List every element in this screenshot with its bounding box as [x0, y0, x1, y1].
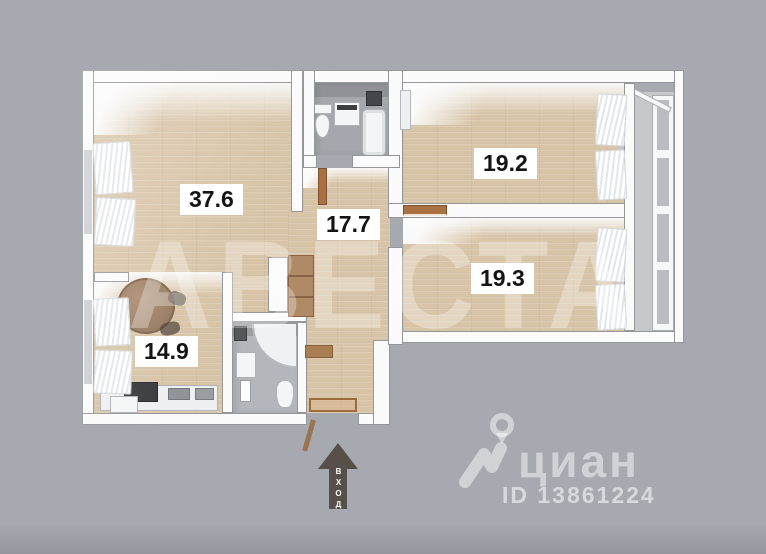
hallway-area-label: 17.7	[317, 209, 380, 240]
kitchen-sink	[195, 388, 214, 400]
wc-door-leaf	[318, 168, 327, 205]
kitchen-sink	[168, 388, 190, 400]
bedroom-2-area-label: 19.3	[471, 263, 534, 294]
entrance-mat	[309, 398, 357, 412]
kitchen-curtain	[93, 297, 131, 347]
wardrobe	[288, 255, 314, 317]
bedroom-1-curtain	[595, 93, 628, 146]
wall	[674, 70, 684, 343]
living-room-curtain	[94, 197, 136, 247]
bedroom-1-door-leaf	[400, 90, 411, 130]
bathroom-door-leaf	[240, 380, 251, 402]
entry-shelf	[305, 345, 333, 358]
wall	[94, 272, 129, 282]
washing-machine-panel	[336, 104, 358, 111]
window-glass	[84, 150, 92, 234]
wall	[222, 272, 233, 413]
wall	[303, 155, 317, 168]
wall	[373, 340, 390, 425]
floor-plan-image: ВХОД 37.6 17.7 19.2 19.3 14.9 АВЕСТА циа…	[0, 0, 766, 554]
kitchen-area-label: 14.9	[135, 336, 198, 367]
entrance-arrow: ВХОД	[318, 443, 358, 511]
bathroom-cabinet	[234, 326, 247, 341]
wall	[268, 257, 288, 312]
entrance-label: ВХОД	[334, 467, 342, 511]
bedroom-2-curtain	[595, 227, 628, 282]
entrance-arrow-shaft: ВХОД	[329, 468, 347, 509]
cian-logo-text: циан	[518, 434, 640, 488]
wall	[297, 322, 307, 413]
wall	[390, 331, 684, 343]
living-room-area-label: 37.6	[180, 184, 243, 215]
cian-person-pin-icon	[458, 410, 524, 488]
wall	[352, 155, 400, 168]
listing-id: ID 13861224	[502, 482, 656, 509]
wall	[82, 413, 307, 425]
wall	[303, 70, 315, 168]
hallway-floor	[303, 168, 390, 345]
window-glass	[84, 300, 92, 384]
bathroom-toilet	[276, 380, 294, 408]
living-hall-passage-floor	[288, 210, 306, 258]
bathroom-sink	[236, 352, 256, 378]
wall	[82, 70, 684, 83]
living-room-curtain	[92, 141, 134, 196]
toilet-tank	[313, 104, 332, 114]
balcony-window-pane	[657, 214, 669, 262]
arrow-up-icon	[318, 443, 358, 469]
kitchen-curtain	[93, 349, 133, 394]
bedroom-1-curtain	[595, 149, 628, 201]
bedroom-2-curtain	[595, 283, 627, 331]
balcony-window-pane	[657, 158, 669, 206]
wall	[291, 70, 303, 212]
wall-sink	[366, 91, 382, 106]
kitchen-stool	[110, 396, 138, 413]
wall	[388, 247, 403, 345]
bathtub	[362, 109, 386, 156]
cian-logo	[458, 410, 524, 488]
bedroom-2-door-leaf	[403, 205, 447, 216]
bottom-shadow	[0, 524, 766, 554]
bedroom-1-area-label: 19.2	[474, 148, 537, 179]
balcony-window-pane	[657, 270, 669, 324]
bedroom-1-floor	[403, 83, 624, 203]
